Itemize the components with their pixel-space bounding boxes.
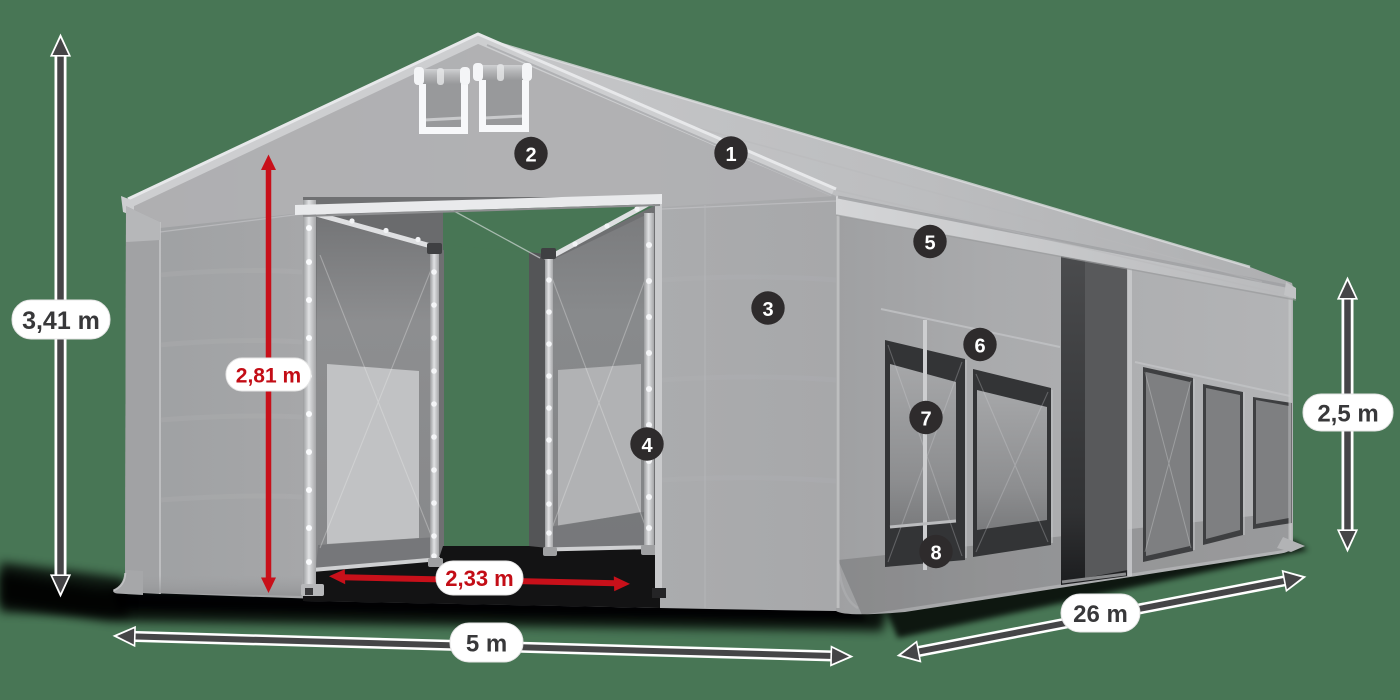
svg-text:5 m: 5 m <box>466 630 507 657</box>
svg-text:2,81 m: 2,81 m <box>236 364 301 387</box>
svg-text:2: 2 <box>525 145 536 167</box>
svg-text:2,33 m: 2,33 m <box>445 566 514 591</box>
svg-text:5: 5 <box>924 233 935 255</box>
svg-text:4: 4 <box>641 435 653 457</box>
svg-text:2,5 m: 2,5 m <box>1317 400 1378 427</box>
svg-text:8: 8 <box>930 543 941 565</box>
svg-text:3,41 m: 3,41 m <box>22 307 100 335</box>
svg-text:6: 6 <box>974 336 985 358</box>
svg-text:3: 3 <box>762 299 773 321</box>
svg-text:26 m: 26 m <box>1073 601 1128 628</box>
svg-text:1: 1 <box>725 144 736 166</box>
svg-text:7: 7 <box>920 409 931 431</box>
